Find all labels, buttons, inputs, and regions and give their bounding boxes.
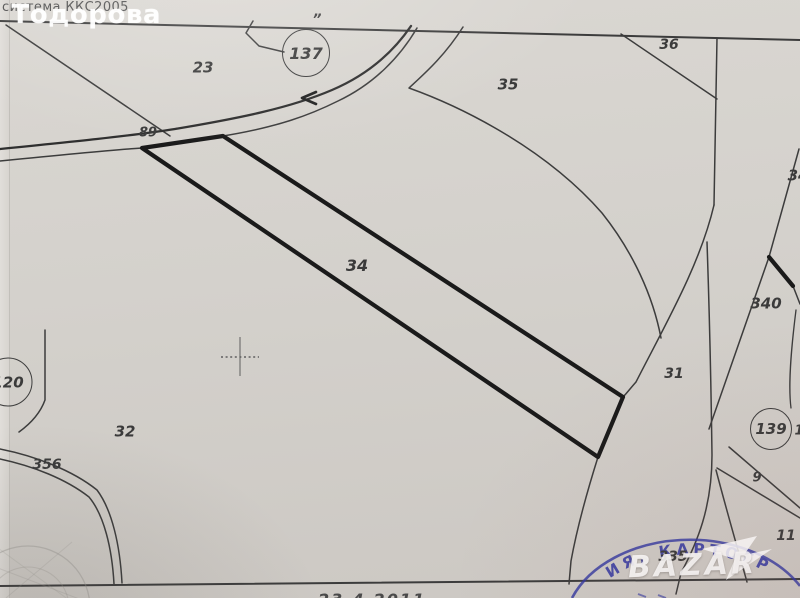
road-356-east-edge — [0, 459, 114, 584]
parcel-label-36: 36 — [659, 38, 678, 52]
owner-name-watermark: Виктория Тодорова — [0, 2, 161, 28]
boundary-340-edge — [793, 286, 800, 304]
parcel-label-34-edge: 34 — [788, 169, 800, 184]
marketplace-watermark: BAZAR — [628, 549, 758, 583]
boundary-parcel-23 — [6, 25, 170, 136]
parcel-34-highlight-outline — [142, 136, 623, 457]
boundary-parcel-9-north — [729, 447, 800, 508]
road-upper-edge — [0, 26, 411, 149]
parcel-label-32: 32 — [115, 425, 136, 440]
boundary-340-strip-a — [769, 149, 799, 257]
parcel-label-89: 89 — [139, 127, 157, 140]
parcel-label-edge-1: 1 — [794, 425, 800, 438]
parcel-highlight-segment-east — [769, 257, 793, 286]
parcel-label-34: 34 — [346, 258, 368, 274]
boundary-right-edge-small — [790, 310, 796, 408]
boundary-right-vertical — [714, 38, 717, 205]
boundary-curve-east — [569, 205, 714, 584]
circled-parcel-120-label: 120 — [0, 373, 24, 391]
parcel-label-9: 9 — [752, 472, 761, 485]
clipped-bottom-date: 23.4.2011 — [318, 590, 428, 598]
boundary-340-strip-b — [709, 257, 769, 429]
parcel-label-356: 356 — [32, 458, 61, 472]
ghost-stamp — [0, 542, 90, 598]
circled-parcel-139: 139 — [750, 408, 792, 450]
road-lower-edge — [0, 28, 417, 161]
double-prime-mark: ” — [312, 13, 321, 27]
parcel-label-340: 340 — [750, 297, 781, 312]
parcel-label-23: 23 — [193, 61, 214, 76]
parcel-label-31: 31 — [664, 367, 683, 381]
circled-parcel-137: 137 — [282, 29, 330, 77]
boundary-parcel-35 — [409, 27, 661, 338]
cadastral-map-photo: ИЯ, КАРТОГР система ККС2005 Виктория Тод… — [0, 0, 800, 598]
map-linework: ИЯ, КАРТОГР — [0, 0, 800, 598]
circled-parcel-137-label: 137 — [289, 44, 322, 63]
circled-parcel-139-label: 139 — [755, 420, 786, 438]
grid-cross-marker — [221, 337, 259, 376]
feature-polygon-137 — [246, 21, 284, 52]
parcel-label-11: 11 — [776, 529, 795, 543]
parcel-label-35: 35 — [498, 78, 519, 93]
